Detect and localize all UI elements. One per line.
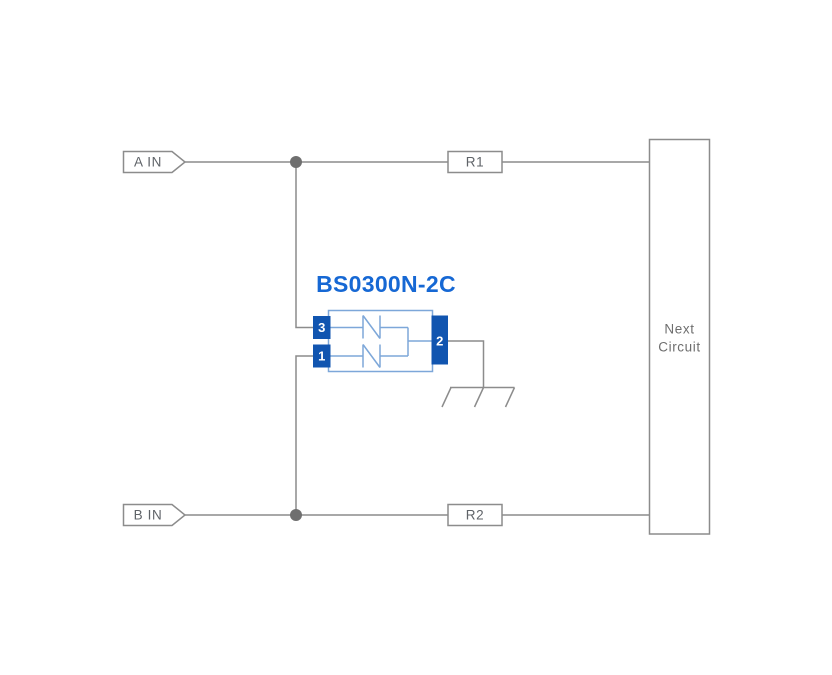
- circuit-diagram: A IN B IN R1 R2 Next Circuit BS0300N-2C: [0, 0, 832, 675]
- resistor-r2: R2: [448, 505, 502, 526]
- next-circuit-label-line2: Circuit: [658, 340, 700, 355]
- pin-2: 2: [432, 316, 449, 365]
- wire-pin2-to-ground: [448, 341, 484, 388]
- chassis-ground-icon: [442, 388, 515, 408]
- b-in-label: B IN: [134, 508, 163, 523]
- ground-hash-left: [442, 388, 451, 408]
- next-circuit-box: [650, 140, 710, 535]
- component-bs0300n-2c: BS0300N-2C 3: [313, 271, 456, 372]
- next-circuit-block: Next Circuit: [650, 140, 710, 535]
- r2-label: R2: [466, 508, 484, 523]
- input-b: B IN: [124, 505, 186, 526]
- component-title: BS0300N-2C: [316, 271, 456, 297]
- junction-dot-b: [290, 509, 302, 521]
- pin-2-label: 2: [436, 334, 443, 349]
- junction-dot-a: [290, 156, 302, 168]
- input-a: A IN: [124, 152, 186, 173]
- resistor-r1: R1: [448, 152, 502, 173]
- r1-label: R1: [466, 155, 484, 170]
- wire-b-to-pin1: [296, 356, 313, 515]
- wire-a-to-pin3: [296, 162, 313, 328]
- pin-1-label: 1: [318, 349, 325, 364]
- pin-3-label: 3: [318, 320, 325, 335]
- ground-hash-right: [506, 388, 515, 408]
- a-in-label: A IN: [134, 155, 162, 170]
- schematic-canvas: A IN B IN R1 R2 Next Circuit BS0300N-2C: [0, 0, 832, 675]
- pin-3: 3: [313, 316, 331, 339]
- next-circuit-label-line1: Next: [664, 322, 694, 337]
- pin-1: 1: [313, 345, 331, 368]
- ground-hash-middle: [475, 388, 484, 408]
